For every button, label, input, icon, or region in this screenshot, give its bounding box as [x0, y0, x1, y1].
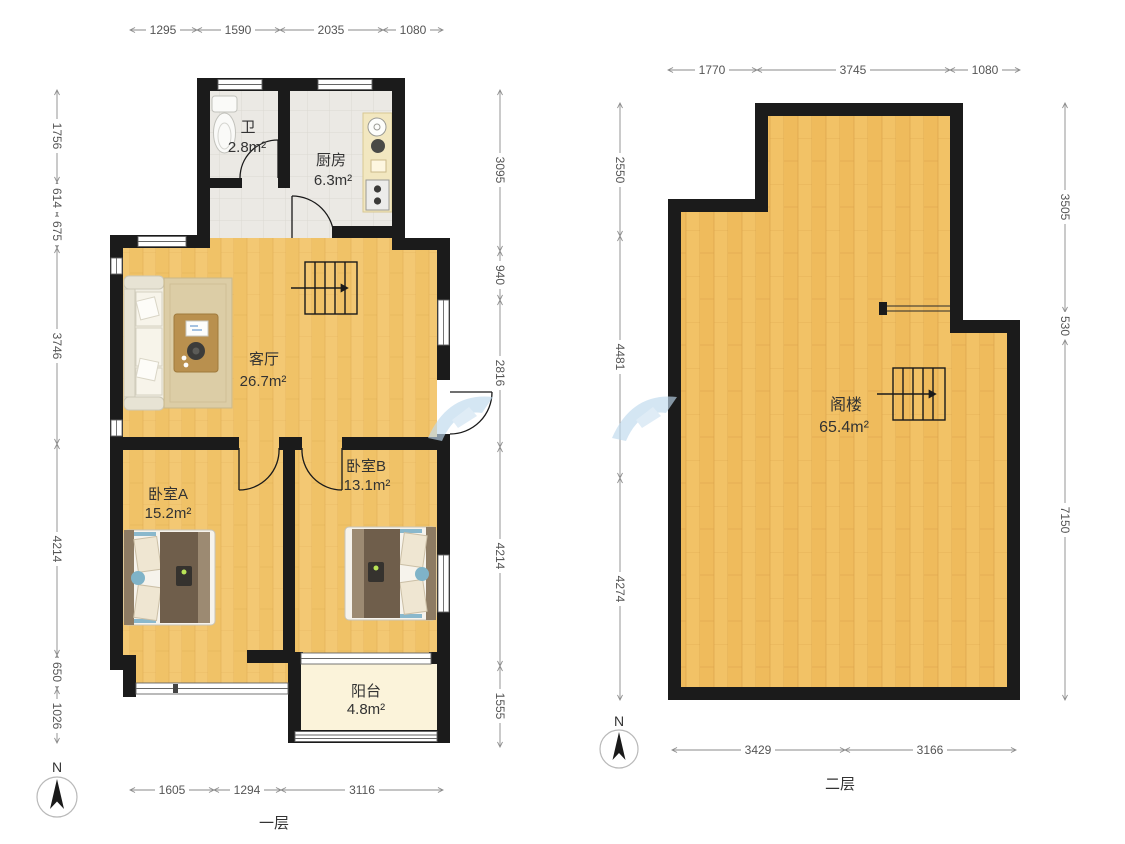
coffee-table: [174, 314, 218, 372]
floor2-compass: N: [600, 713, 638, 768]
dim-f1-top-0: 1295: [150, 23, 177, 37]
dim-f1-left-4: 4214: [50, 536, 64, 563]
floor2-label: 二层: [825, 776, 855, 793]
sink-icon: [368, 118, 386, 136]
dim-f1-left-6: 1026: [50, 703, 64, 730]
living-window-top: [138, 237, 186, 247]
dim-f1-right-1: 940: [493, 265, 507, 285]
dim-f2-bottom-0: 3429: [745, 743, 772, 757]
dim-f2-bottom-1: 3166: [917, 743, 944, 757]
dim-f2-top-2: 1080: [972, 63, 999, 77]
dim-f1-bottom-0: 1605: [159, 783, 186, 797]
bed-b: [345, 527, 436, 620]
dim-f1-top-2: 2035: [318, 23, 345, 37]
bed-a-accent: [131, 571, 145, 585]
dim-f2-left-2: 4274: [613, 576, 627, 603]
room-label-bedroom-a: 卧室A: [148, 486, 188, 503]
room-label-living: 客厅: [249, 351, 279, 368]
room-area-bedroom-a: 15.2m²: [145, 505, 192, 522]
bedroom-b-window-right: [438, 555, 449, 612]
room-label-balcony: 阳台: [351, 683, 381, 700]
kitchen-window: [318, 80, 372, 90]
floorplan-page: 卫 2.8m² 厨房 6.3m² 客厅 26.7m² 卧室A 15.2m² 卧室…: [0, 0, 1125, 844]
room-area-attic: 65.4m²: [819, 419, 869, 436]
dim-f1-top-3: 1080: [400, 23, 427, 37]
dim-f1-top-1: 1590: [225, 23, 252, 37]
floor1-label: 一层: [259, 815, 289, 832]
bed-a: [124, 530, 215, 625]
floor1-compass: N: [37, 759, 77, 817]
dim-f2-left-1: 4481: [613, 344, 627, 371]
room-area-bedroom-b: 13.1m²: [344, 477, 391, 494]
bath-window: [218, 80, 262, 90]
sofa: [124, 276, 164, 410]
dim-f1-left-3: 3746: [50, 333, 64, 360]
dim-f2-right-0: 3505: [1058, 194, 1072, 221]
dim-f1-left-1: 614: [50, 188, 64, 208]
room-area-living: 26.7m²: [240, 373, 287, 390]
floorplan-svg: 卫 2.8m² 厨房 6.3m² 客厅 26.7m² 卧室A 15.2m² 卧室…: [0, 0, 1125, 844]
pot-icon: [371, 139, 385, 153]
dim-f1-right-4: 1555: [493, 693, 507, 720]
living-window-right: [438, 300, 449, 345]
room-label-attic: 阁楼: [830, 396, 862, 414]
floor1-compass-n: N: [52, 759, 62, 775]
room-label-bath: 卫: [240, 119, 255, 136]
stove-icon: [366, 180, 389, 210]
dim-f2-right-1: 530: [1058, 316, 1072, 336]
dim-f1-right-2: 2816: [493, 360, 507, 387]
room-area-kitchen: 6.3m²: [314, 172, 352, 189]
room-area-balcony: 4.8m²: [347, 701, 385, 718]
living-window-left-2: [111, 420, 122, 436]
dim-f2-right-2: 7150: [1058, 507, 1072, 534]
floor2-plan: 阁楼 65.4m² 1770 3745 1080 2550 4481 4274: [600, 63, 1072, 793]
room-label-kitchen: 厨房: [316, 152, 346, 169]
living-window-left-1: [111, 258, 122, 274]
dim-f1-left-5: 650: [50, 662, 64, 682]
bed-b-accent: [415, 567, 429, 581]
dim-f2-top-1: 3745: [840, 63, 867, 77]
watermarks: [428, 397, 677, 441]
dim-f2-top-0: 1770: [699, 63, 726, 77]
dim-f1-left-2: 675: [50, 221, 64, 241]
room-area-bath: 2.8m²: [228, 139, 266, 156]
dim-f1-right-3: 4214: [493, 543, 507, 570]
floor2-compass-n: N: [614, 713, 624, 729]
dim-f1-right-0: 3095: [493, 157, 507, 184]
dim-f1-left-0: 1756: [50, 123, 64, 150]
dim-f1-bottom-1: 1294: [234, 783, 261, 797]
room-label-bedroom-b: 卧室B: [346, 458, 386, 475]
balcony-slider-window: [301, 653, 431, 664]
dim-f1-bottom-2: 3116: [349, 783, 375, 797]
dim-f2-left-0: 2550: [613, 157, 627, 184]
balcony-window-bottom: [295, 732, 437, 742]
kitchen-counter: [363, 113, 392, 212]
bay-window: [136, 683, 288, 694]
